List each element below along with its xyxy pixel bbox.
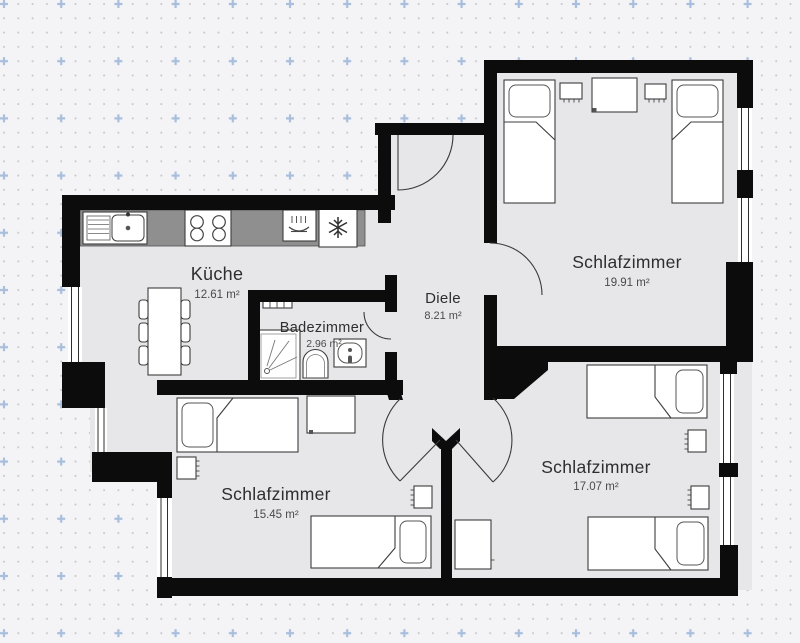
nightstand <box>177 457 200 479</box>
shower-spray-icon <box>257 330 300 382</box>
window <box>738 198 752 262</box>
bed <box>177 398 298 452</box>
kitchen-counter <box>80 208 365 247</box>
room-area-schlafzimmer-top-right: 19.91 m² <box>604 277 650 289</box>
steam-dish-icon <box>283 210 316 241</box>
four-burner-icon <box>185 210 231 246</box>
room-area-schlafzimmer-bottom-right: 17.07 m² <box>573 481 619 493</box>
room-area-kueche: 12.61 m² <box>194 289 240 301</box>
room-area-schlafzimmer-bottom-left: 15.45 m² <box>253 509 299 521</box>
chair <box>181 300 190 319</box>
bed <box>504 80 555 203</box>
radiator-icon <box>263 301 292 308</box>
window <box>68 287 82 362</box>
room-label-badezimmer: Badezimmer <box>280 320 364 336</box>
room-area-diele: 8.21 m² <box>424 310 462 322</box>
snowflake-icon <box>319 208 357 247</box>
window <box>95 408 107 452</box>
dresser <box>307 396 355 434</box>
dresser <box>592 78 637 112</box>
chair <box>181 323 190 342</box>
nightstand <box>688 486 710 509</box>
dresser <box>455 520 495 569</box>
bed <box>672 80 723 203</box>
nightstand <box>411 486 433 508</box>
bed <box>311 516 431 568</box>
chair <box>139 323 148 342</box>
sink-basin-icon <box>83 212 147 244</box>
room-label-schlafzimmer-bottom-right: Schlafzimmer <box>541 457 651 477</box>
dining-table <box>148 288 181 375</box>
window <box>157 498 172 577</box>
bed <box>587 365 707 418</box>
floor-plan-page: Küche 12.61 m² Diele 8.21 m² Badezimmer … <box>0 0 800 643</box>
room-label-schlafzimmer-bottom-left: Schlafzimmer <box>221 484 331 504</box>
nightstand <box>685 430 707 452</box>
window <box>738 108 752 170</box>
window <box>720 374 734 463</box>
chair <box>181 346 190 365</box>
room-label-diele: Diele <box>425 290 461 307</box>
room-label-kueche: Küche <box>191 264 244 284</box>
bed <box>588 517 708 570</box>
window <box>720 477 734 545</box>
floor-plan-svg: Küche 12.61 m² Diele 8.21 m² Badezimmer … <box>0 0 800 643</box>
chair <box>139 300 148 319</box>
room-area-badezimmer: 2.96 m² <box>306 338 342 350</box>
toilet-icon <box>303 350 328 379</box>
chair <box>139 346 148 365</box>
room-label-schlafzimmer-top-right: Schlafzimmer <box>572 252 682 272</box>
dining-set <box>139 288 190 375</box>
